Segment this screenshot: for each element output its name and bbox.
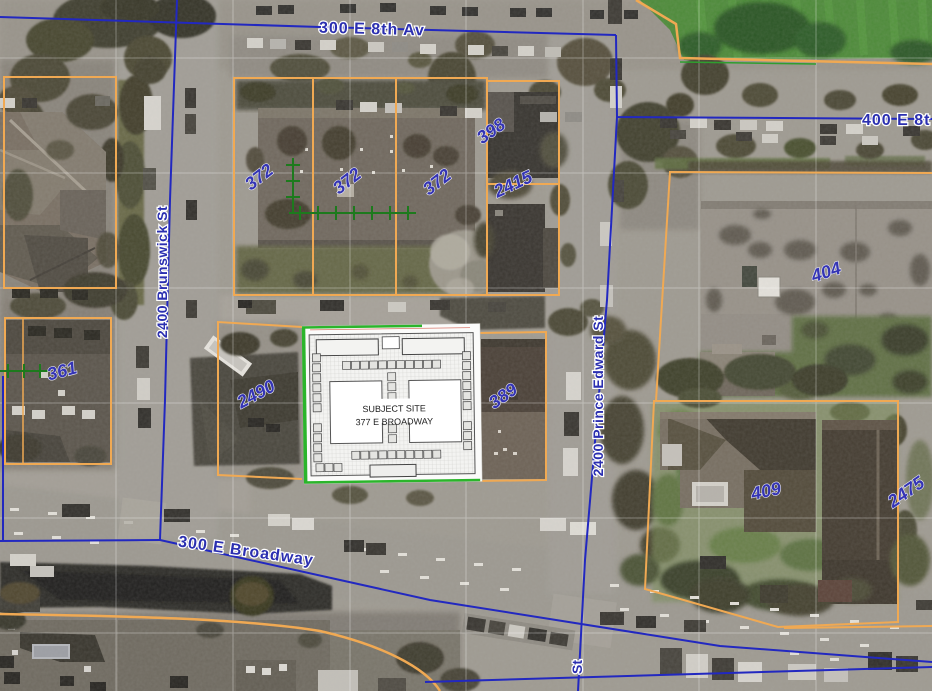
svg-text:300 E 8th Av: 300 E 8th Av [319,20,425,40]
svg-text:400 E 8t: 400 E 8t [862,112,930,129]
svg-text:SUBJECT SITE: SUBJECT SITE [362,403,425,414]
svg-text:2400 Prince Edward St: 2400 Prince Edward St [590,316,606,477]
svg-text:St: St [569,660,585,674]
svg-text:2400 Brunswick St: 2400 Brunswick St [154,206,170,338]
svg-text:377 E BROADWAY: 377 E BROADWAY [356,416,434,427]
